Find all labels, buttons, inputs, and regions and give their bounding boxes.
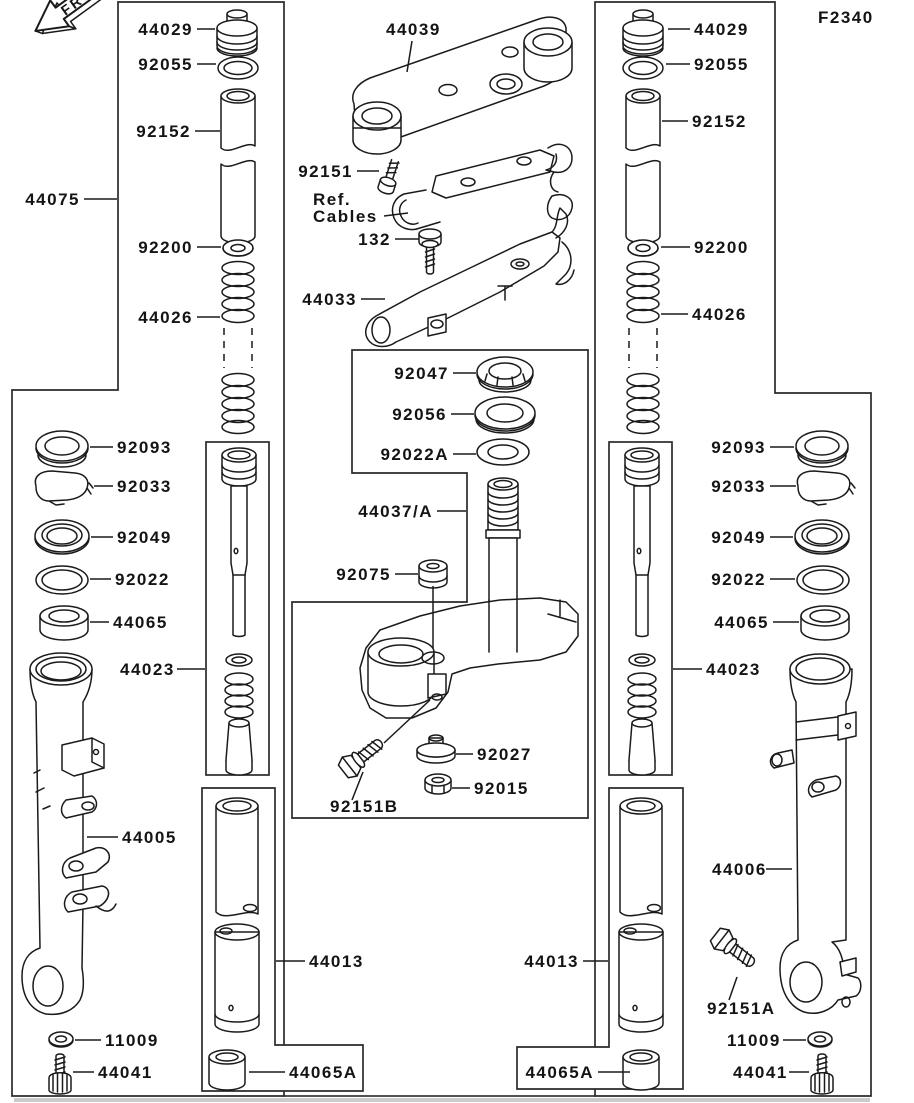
cable-guide-bracket	[392, 144, 572, 229]
front-arrow: FRONT	[26, 0, 129, 49]
parts-fiche-page: FRONT F2340	[0, 0, 914, 1103]
oil-seal-right	[795, 520, 849, 554]
part-label-92027: 92027	[477, 745, 532, 764]
slide-bushing-left	[209, 1050, 245, 1090]
washer-92022a	[477, 439, 529, 465]
seal-washer-right	[797, 566, 849, 594]
fender-stay-44033	[366, 208, 574, 347]
part-label-92033-left: 92033	[117, 477, 172, 496]
outer-tube-lower-left	[215, 924, 259, 1032]
part-label-44075: 44075	[25, 190, 80, 209]
spacer-tube-right	[626, 89, 660, 243]
part-label-92022-right: 92022	[711, 570, 766, 589]
part-label-92075: 92075	[336, 565, 391, 584]
part-label-11009-right: 11009	[727, 1031, 781, 1050]
group-boxes	[12, 2, 871, 1102]
nut-92015	[425, 774, 451, 794]
part-label-92200-right: 92200	[694, 238, 749, 257]
drain-washer-right	[808, 1032, 832, 1047]
damper-rubber-92075	[419, 560, 447, 588]
part-label-92055-left: 92055	[138, 55, 193, 74]
drain-washer-left	[49, 1032, 73, 1047]
part-label-92022a: 92022A	[380, 445, 449, 464]
part-label-92200-left: 92200	[138, 238, 193, 257]
part-label-44029-left: 44029	[138, 20, 193, 39]
parts-diagram: FRONT F2340	[0, 0, 914, 1103]
part-label-44013-left: 44013	[309, 952, 364, 971]
seal-washer-left	[36, 566, 88, 594]
part-label-92093-right: 92093	[711, 438, 766, 457]
spring-seat-left	[223, 240, 253, 256]
clamp-screw-92151	[377, 158, 403, 195]
part-label-92152-right: 92152	[692, 112, 747, 131]
part-label-92152-left: 92152	[136, 122, 191, 141]
part-label-44065-right: 44065	[714, 613, 769, 632]
spacer-tube-left	[221, 89, 255, 243]
outer-tube-upper-right	[620, 798, 662, 916]
outer-tube-lower-right	[619, 924, 663, 1032]
part-label-44039: 44039	[386, 20, 441, 39]
guide-bushing-right	[801, 606, 849, 640]
oil-seal-left	[35, 520, 89, 554]
part-label-92151b: 92151B	[330, 797, 399, 816]
slide-bushing-right	[623, 1050, 659, 1090]
part-label-44033: 44033	[302, 290, 357, 309]
part-label-44041-right: 44041	[733, 1063, 788, 1082]
part-label-92056: 92056	[392, 405, 447, 424]
bolt-132	[419, 229, 441, 274]
cables-label: Cables	[313, 207, 378, 226]
outer-tube-upper-left	[216, 798, 258, 916]
part-label-44013-right: 44013	[524, 952, 579, 971]
part-label-92055-right: 92055	[694, 55, 749, 74]
part-label-11009-left: 11009	[105, 1031, 159, 1050]
part-label-44041-left: 44041	[98, 1063, 153, 1082]
part-label-44065a-left: 44065A	[289, 1063, 358, 1082]
part-label-44023-left: 44023	[120, 660, 175, 679]
part-label-92015: 92015	[474, 779, 529, 798]
part-label-92151a: 92151A	[707, 999, 776, 1018]
part-label-44005: 44005	[122, 828, 177, 847]
part-label-92093-left: 92093	[117, 438, 172, 457]
part-label-132: 132	[358, 230, 391, 249]
guide-bushing-left	[40, 606, 88, 640]
fiche-code: F2340	[818, 8, 874, 27]
part-label-44037a: 44037/A	[358, 502, 433, 521]
part-label-44065-left: 44065	[113, 613, 168, 632]
part-label-44029-right: 44029	[694, 20, 749, 39]
part-label-44026-left: 44026	[138, 308, 193, 327]
part-label-44023-right: 44023	[706, 660, 761, 679]
part-label-92047: 92047	[394, 364, 449, 383]
part-label-44006: 44006	[712, 860, 767, 879]
part-label-92022-left: 92022	[115, 570, 170, 589]
part-label-44026-right: 44026	[692, 305, 747, 324]
part-label-92151: 92151	[298, 162, 353, 181]
page-edge-shadow	[14, 1098, 870, 1102]
part-label-92033-right: 92033	[711, 477, 766, 496]
part-label-92049-left: 92049	[117, 528, 172, 547]
part-label-44065a-right: 44065A	[525, 1063, 594, 1082]
part-label-92049-right: 92049	[711, 528, 766, 547]
spring-seat-right	[628, 240, 658, 256]
